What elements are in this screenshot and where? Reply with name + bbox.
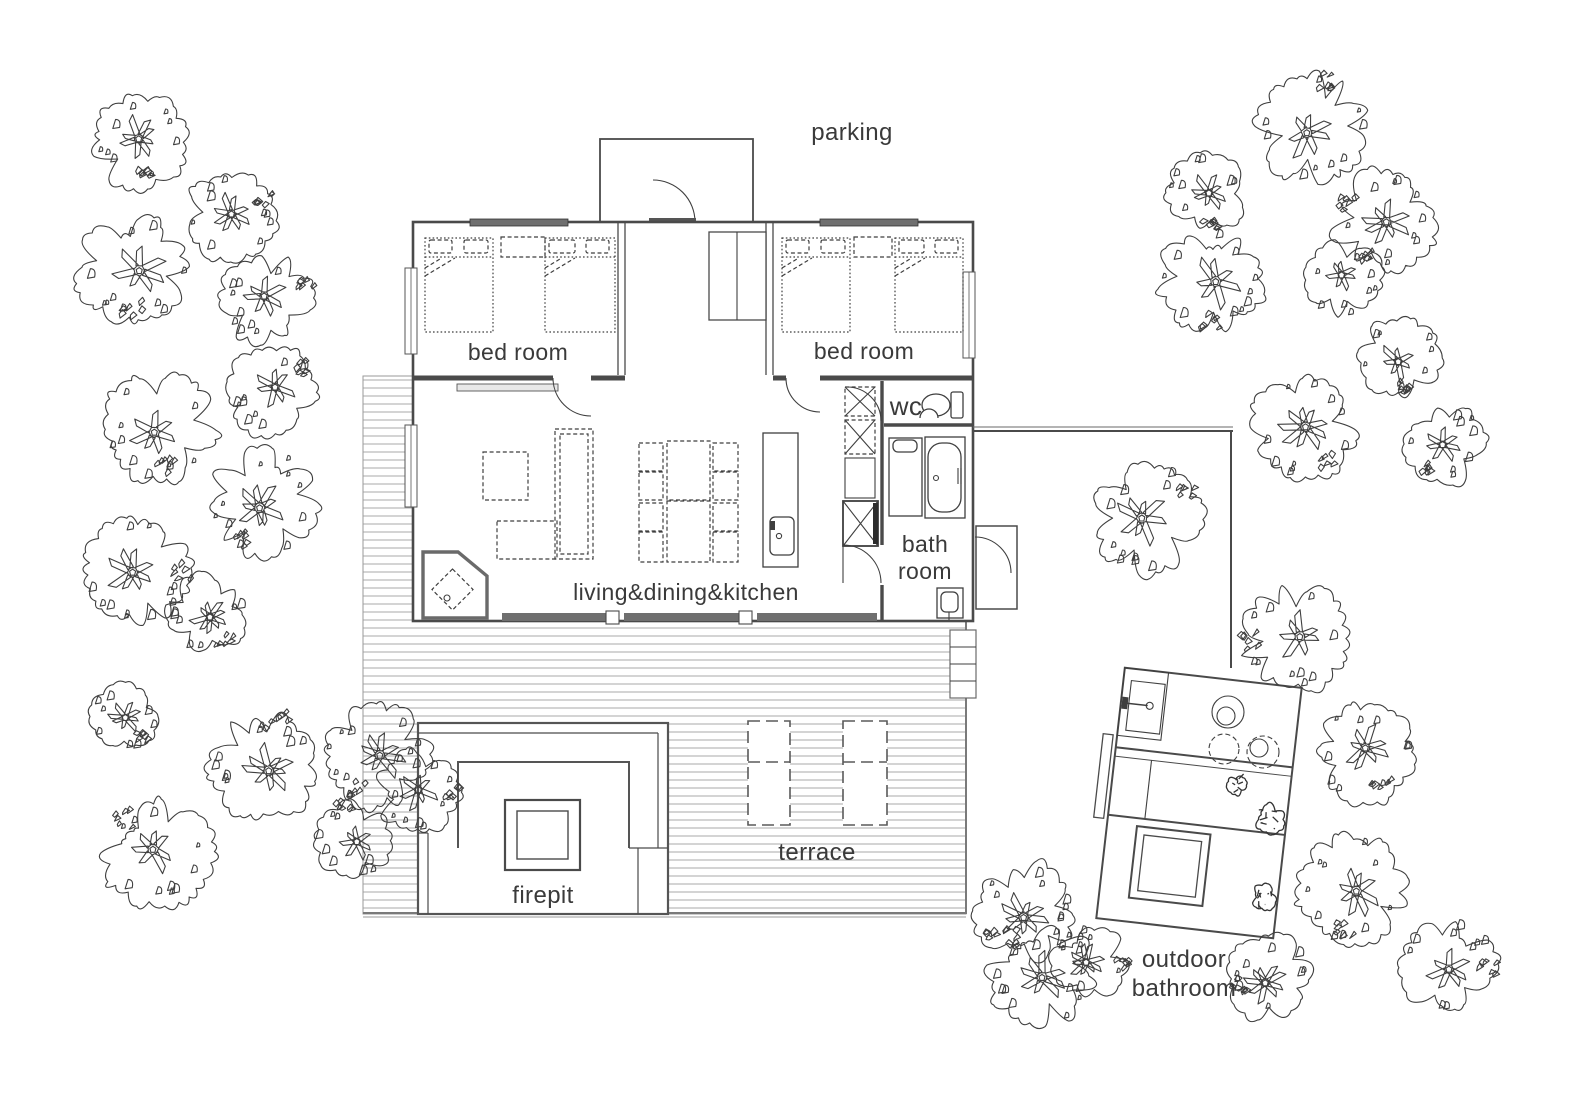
kitchen-island — [763, 433, 798, 567]
tree — [1402, 408, 1489, 487]
tree — [218, 256, 317, 347]
tree — [1294, 831, 1409, 947]
label-firepit: firepit — [512, 882, 574, 909]
label-bedroom-left: bed room — [468, 339, 568, 365]
bath-landing — [975, 526, 1017, 609]
house — [405, 219, 975, 624]
tree — [984, 925, 1097, 1028]
label-outdoor-1: outdoor — [1142, 946, 1226, 973]
lounger — [843, 721, 887, 825]
bathtub — [889, 437, 965, 518]
lounger — [748, 721, 790, 825]
tree — [1094, 461, 1207, 579]
tree — [74, 215, 190, 324]
site-plan: parking bed room bed room living&dining&… — [0, 0, 1589, 1101]
label-living-dining-kitchen: living&dining&kitchen — [573, 579, 799, 605]
tree — [1357, 316, 1444, 397]
tree — [1250, 374, 1360, 482]
tree — [88, 681, 159, 748]
label-wc: wc — [889, 391, 923, 421]
tree — [1156, 229, 1266, 332]
floor-plan-canvas: parking bed room bed room living&dining&… — [0, 0, 1589, 1101]
tree — [1227, 932, 1314, 1021]
tree — [1329, 166, 1438, 274]
label-bath-1: bath — [902, 531, 948, 557]
tree — [1397, 920, 1500, 1011]
label-bedroom-right: bed room — [814, 338, 914, 364]
label-terrace: terrace — [778, 839, 856, 866]
tree — [165, 571, 246, 651]
tree — [210, 445, 322, 561]
tree — [99, 796, 218, 910]
hall-closet — [709, 232, 766, 320]
tree — [1049, 926, 1132, 1000]
entrance-porch — [600, 139, 753, 225]
label-outdoor-2: bathroom — [1132, 975, 1237, 1002]
tree — [1252, 70, 1367, 185]
tree — [204, 709, 316, 820]
tree — [226, 347, 320, 439]
terrace-steps — [950, 630, 976, 698]
tree — [1237, 586, 1350, 693]
tree — [1304, 240, 1385, 318]
tree — [103, 372, 222, 485]
tree — [1164, 151, 1244, 231]
label-bath-2: room — [898, 558, 952, 584]
tree — [1317, 702, 1417, 807]
label-parking: parking — [811, 119, 893, 146]
tree — [92, 94, 190, 193]
bath-sink — [937, 588, 963, 620]
tree — [189, 173, 279, 263]
